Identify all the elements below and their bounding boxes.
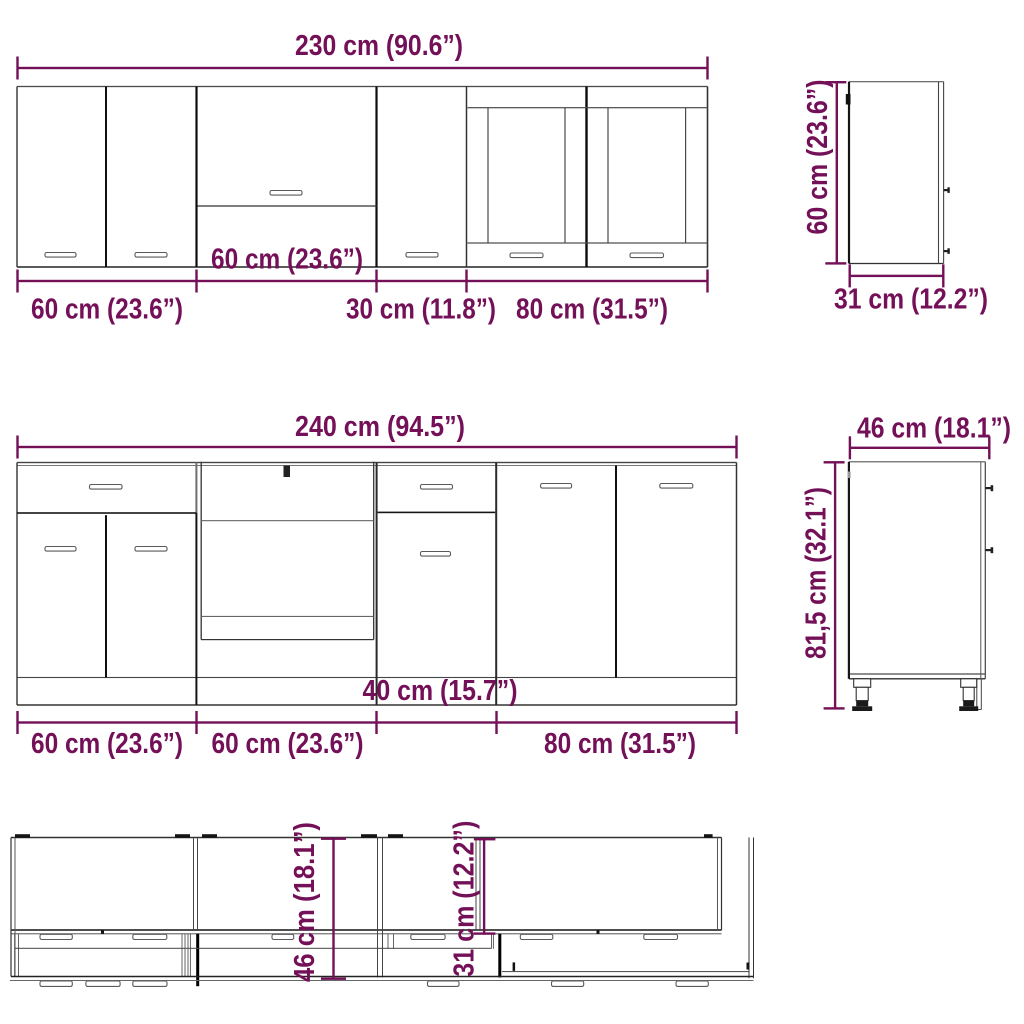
svg-text:31 cm (12.2”): 31 cm (12.2”) [834, 283, 988, 315]
svg-text:60 cm (23.6”): 60 cm (23.6”) [31, 728, 183, 760]
svg-text:30 cm (11.8”): 30 cm (11.8”) [346, 293, 496, 325]
svg-text:80 cm (31.5”): 80 cm (31.5”) [544, 728, 696, 760]
svg-text:46 cm (18.1”): 46 cm (18.1”) [857, 412, 1011, 444]
svg-text:240 cm (94.5”): 240 cm (94.5”) [295, 411, 465, 443]
svg-text:31 cm (12.2”): 31 cm (12.2”) [448, 821, 480, 977]
svg-text:81,5 cm (32.1”): 81,5 cm (32.1”) [800, 487, 832, 659]
svg-text:60 cm (23.6”): 60 cm (23.6”) [212, 728, 364, 760]
svg-text:80 cm (31.5”): 80 cm (31.5”) [516, 293, 668, 325]
svg-text:46 cm (18.1”): 46 cm (18.1”) [289, 822, 321, 982]
svg-text:230 cm (90.6”): 230 cm (90.6”) [295, 30, 463, 62]
svg-text:60 cm (23.6”): 60 cm (23.6”) [802, 80, 834, 235]
svg-text:60 cm (23.6”): 60 cm (23.6”) [31, 293, 183, 325]
svg-text:60 cm (23.6”): 60 cm (23.6”) [211, 243, 363, 275]
svg-text:40 cm (15.7”): 40 cm (15.7”) [363, 675, 518, 707]
